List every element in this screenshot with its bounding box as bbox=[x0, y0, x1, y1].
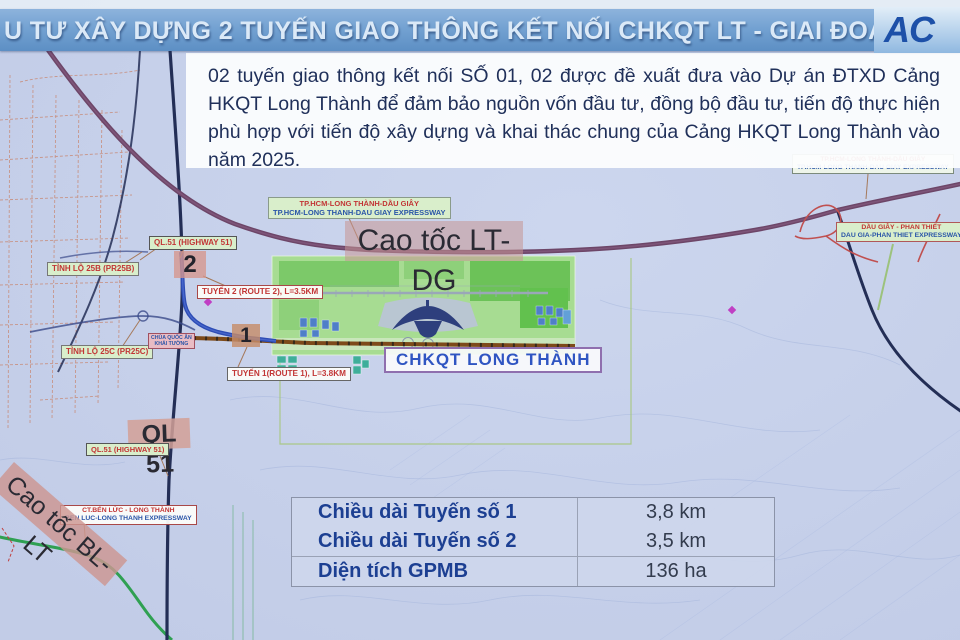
pagoda-label: CHÙA QUỐC ÂN KHẢI TƯỜNG bbox=[148, 333, 195, 349]
pr25c-label: TỈNH LỘ 25C (PR25C) bbox=[61, 345, 153, 359]
route1-label: TUYẾN 1(ROUTE 1), L=3.8KM bbox=[227, 367, 351, 381]
table-row-label: Diện tích GPMB bbox=[292, 557, 578, 586]
intro-panel: 02 tuyến giao thông kết nối SỐ 01, 02 đư… bbox=[186, 53, 960, 168]
table-row-label: Chiều dài Tuyến số 2 bbox=[292, 527, 578, 556]
ql51-label-bottom: QL.51 (HIGHWAY 51) bbox=[86, 443, 169, 456]
route2-label: TUYẾN 2 (ROUTE 2), L=3.5KM bbox=[197, 285, 323, 299]
airport-name-label: CHKQT LONG THÀNH bbox=[384, 347, 602, 373]
page-title: U TƯ XÂY DỰNG 2 TUYẾN GIAO THÔNG KẾT NỐI… bbox=[4, 9, 927, 51]
ql51-label-top: QL.51 (HIGHWAY 51) bbox=[149, 236, 237, 250]
route1-number-marker: 1 bbox=[232, 324, 260, 347]
table-row: Chiều dài Tuyến số 1 3,8 km bbox=[292, 498, 774, 527]
table-row-label: Chiều dài Tuyến số 1 bbox=[292, 498, 578, 527]
caotoc-ltdg-label: Cao tốc LT-DG bbox=[345, 221, 523, 261]
stats-table: Chiều dài Tuyến số 1 3,8 km Chiều dài Tu… bbox=[291, 497, 775, 587]
route2-number-marker: 2 bbox=[174, 251, 206, 278]
pr25b-label: TỈNH LỘ 25B (PR25B) bbox=[47, 262, 139, 276]
table-row-value: 136 ha bbox=[578, 560, 774, 583]
acv-logo: AC bbox=[874, 7, 960, 53]
expressway-label-mid: TP.HCM-LONG THÀNH-DẦU GIÂY TP.HCM-LONG T… bbox=[268, 197, 451, 219]
table-row: Chiều dài Tuyến số 2 3,5 km bbox=[292, 527, 774, 556]
table-row-value: 3,8 km bbox=[578, 501, 774, 524]
title-bar: U TƯ XÂY DỰNG 2 TUYẾN GIAO THÔNG KẾT NỐI… bbox=[0, 9, 960, 51]
presentation-board: U TƯ XÂY DỰNG 2 TUYẾN GIAO THÔNG KẾT NỐI… bbox=[0, 0, 960, 640]
dgpt-label: DẦU GIÂY - PHAN THIẾT DAU GIA-PHAN THIET… bbox=[836, 222, 960, 242]
intro-text: 02 tuyến giao thông kết nối SỐ 01, 02 đư… bbox=[208, 62, 940, 174]
wall-strip bbox=[0, 0, 960, 9]
table-row-value: 3,5 km bbox=[578, 530, 774, 553]
table-row: Diện tích GPMB 136 ha bbox=[292, 556, 774, 586]
